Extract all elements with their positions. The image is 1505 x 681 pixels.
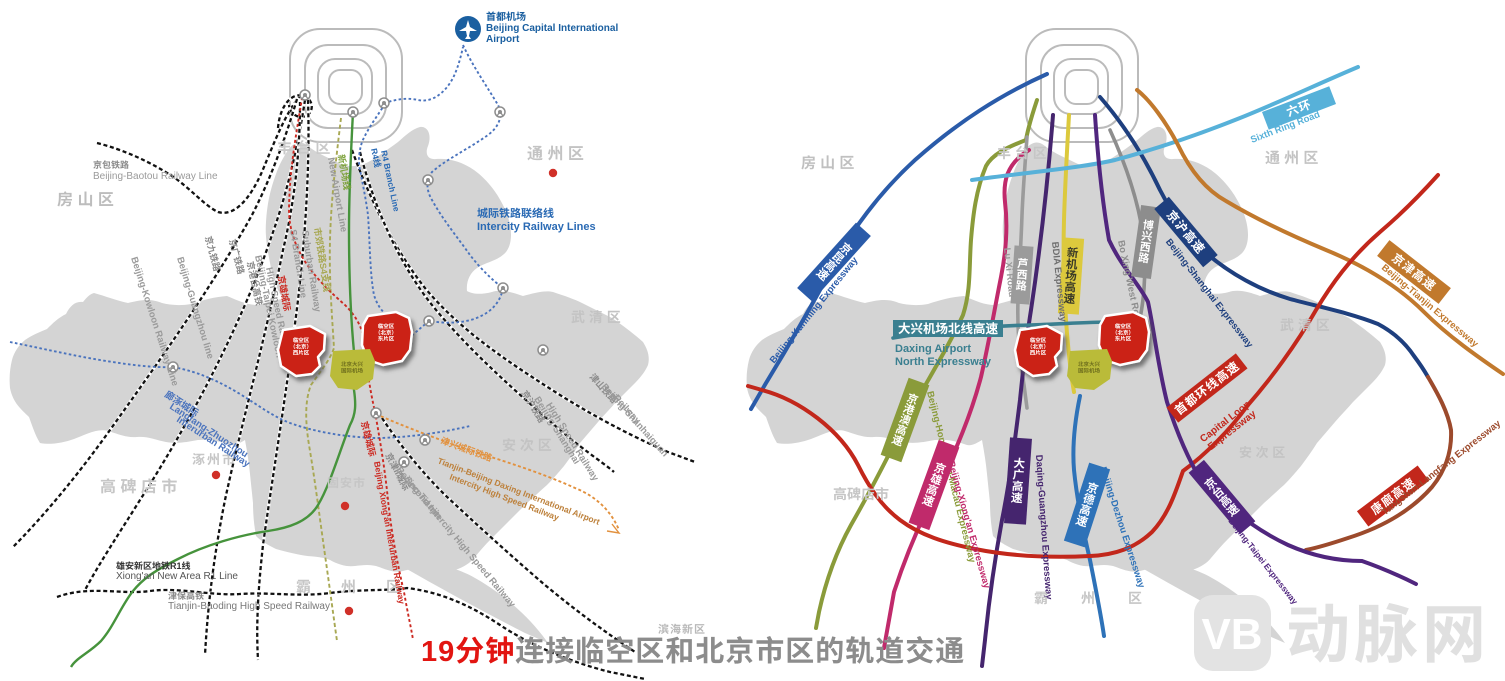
svg-text:京广铁路: 京广铁路 xyxy=(227,238,246,275)
svg-text:武 清 区: 武 清 区 xyxy=(1280,317,1330,333)
svg-text:丰 台 区: 丰 台 区 xyxy=(277,140,330,157)
svg-text:津保高铁: 津保高铁 xyxy=(168,591,204,601)
svg-text:滨海新区: 滨海新区 xyxy=(658,623,706,636)
svg-text:武 清 区: 武 清 区 xyxy=(571,309,621,325)
svg-text:Railway: Railway xyxy=(611,393,643,427)
svg-text:安 次 区: 安 次 区 xyxy=(502,437,552,453)
svg-text:固安市: 固安市 xyxy=(327,476,366,490)
svg-text:高 碑 店 市: 高 碑 店 市 xyxy=(100,478,177,496)
svg-text:房 山 区: 房 山 区 xyxy=(57,191,114,209)
svg-text:19分钟连接临空区和北京市区的轨道交通: 19分钟连接临空区和北京市区的轨道交通 xyxy=(421,636,965,668)
svg-text:丰 台 区: 丰 台 区 xyxy=(997,145,1047,161)
svg-text:通 州 区: 通 州 区 xyxy=(527,145,584,163)
svg-text:首都机场: 首都机场 xyxy=(486,11,526,23)
svg-text:房 山 区: 房 山 区 xyxy=(801,155,854,172)
svg-text:Tangshan-Langfang Expressway: Tangshan-Langfang Expressway xyxy=(1380,418,1504,518)
svg-text:Airport: Airport xyxy=(486,34,520,45)
svg-text:安 次 区: 安 次 区 xyxy=(1239,445,1285,460)
svg-text:雄安新区地铁R1线: 雄安新区地铁R1线 xyxy=(116,561,191,571)
svg-text:霸州区: 霸州区 xyxy=(1034,590,1175,606)
svg-text:Xiong'an New Area R1 Line: Xiong'an New Area R1 Line xyxy=(116,571,238,582)
svg-text:通 州 区: 通 州 区 xyxy=(1265,150,1318,167)
svg-text:京包铁路: 京包铁路 xyxy=(93,160,129,170)
svg-text:Beijing-Xiong'an Expressway: Beijing-Xiong'an Expressway xyxy=(945,460,992,591)
svg-text:Intercity Railway Lines: Intercity Railway Lines xyxy=(477,221,596,233)
svg-text:动脉网: 动脉网 xyxy=(1286,599,1490,671)
svg-text:城际铁路联络线: 城际铁路联络线 xyxy=(477,207,554,220)
svg-text:Beijing Capital International: Beijing Capital International xyxy=(486,23,618,34)
svg-text:霸州区: 霸州区 xyxy=(296,579,431,596)
svg-text:Tianjin-Baoding High Speed Rai: Tianjin-Baoding High Speed Railway xyxy=(168,601,330,612)
svg-text:京九铁路: 京九铁路 xyxy=(203,235,222,272)
svg-text:VB: VB xyxy=(1201,610,1262,659)
svg-text:Beijing-Baotou Railway Line: Beijing-Baotou Railway Line xyxy=(93,171,218,182)
svg-text:高碑店市: 高碑店市 xyxy=(833,486,889,502)
svg-text:大兴机场北线高速: 大兴机场北线高速 xyxy=(898,321,999,336)
